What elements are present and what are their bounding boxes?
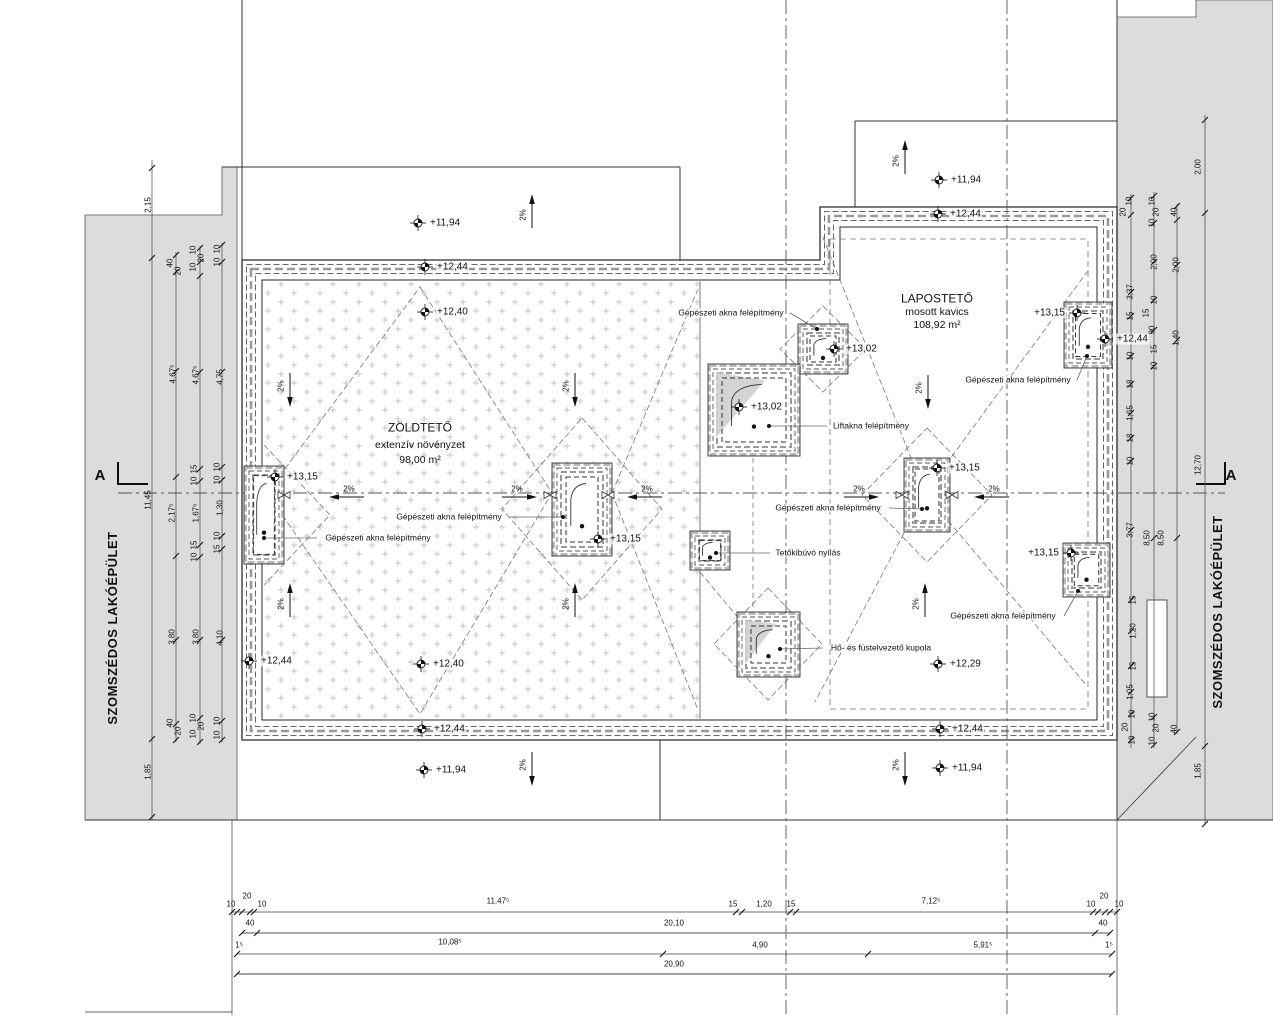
elevation-marker-icon <box>932 760 948 776</box>
dimension-label: 10 <box>190 263 199 272</box>
leader-dot <box>920 507 924 511</box>
leader-dot <box>1085 354 1089 358</box>
leader-dot <box>815 327 819 331</box>
elevation-label: +13,15 <box>1027 548 1060 559</box>
roof-shaft <box>906 460 949 531</box>
dimension-label: 8,50 <box>1144 530 1153 546</box>
dimension-label: 20 <box>198 254 207 263</box>
dimension-label: 15 <box>191 541 200 550</box>
green-roof-title: ZÖLDTETŐ <box>388 421 452 434</box>
dimension-label: 15 <box>1130 596 1139 605</box>
dimension-label: 1,05 <box>1127 684 1136 700</box>
dimension-label: 20,90 <box>664 961 684 970</box>
dimension-label: 18 <box>1127 434 1136 443</box>
dimension-label: 20 <box>1153 208 1162 217</box>
slope-label: 2% <box>913 598 922 610</box>
slope-label: 2% <box>563 380 572 392</box>
dimension-label: 15 <box>214 545 223 554</box>
dimension-label: 2,00 <box>1173 257 1182 273</box>
roof-shaft <box>925 506 929 510</box>
dimension-label: 10 <box>1115 901 1124 910</box>
dimension-label: 10 <box>214 532 223 541</box>
dimension-label: 20 <box>243 893 252 902</box>
roof-shaft <box>246 468 283 563</box>
dimension-label: 10 <box>191 477 200 486</box>
dimension-label: 10 <box>214 717 223 726</box>
roof-shaft <box>262 530 266 534</box>
dimension-label: 20 <box>1153 724 1162 733</box>
slope-arrow <box>529 194 535 204</box>
dimension-label: 1,85 <box>145 764 154 780</box>
dimension-label: 1⁵ <box>235 942 243 951</box>
elevation-marker-icon <box>932 721 948 737</box>
elevation-label: +11,94 <box>429 218 461 229</box>
slope-arrow <box>529 776 535 786</box>
dimension-label: 10 <box>214 463 223 472</box>
dimension-label: 40 <box>1171 208 1180 217</box>
dimension-label: 4,75 <box>217 369 226 385</box>
dimension-label: 1,40 <box>1173 330 1182 346</box>
dimension-label: 10 <box>1127 352 1136 361</box>
slope-arrow <box>902 140 908 150</box>
leader-dot <box>262 536 266 540</box>
dimension-label: 15 <box>787 901 796 910</box>
dimension-label: 1⁵ <box>1105 942 1113 951</box>
green-roof-area: 98,00 m² <box>399 455 440 467</box>
green-roof-subtitle: extenzív növényzet <box>375 440 465 452</box>
dimension-label: 4,90 <box>752 942 768 951</box>
slope-label: 2% <box>520 209 529 221</box>
elevation-marker-icon <box>417 259 433 275</box>
slope-label: 2% <box>278 380 287 392</box>
dimension-label: 7,12⁵ <box>922 898 941 907</box>
slope-label: 2% <box>916 382 925 394</box>
dimension-label: 10 <box>1151 296 1160 305</box>
dimension-label: 10 <box>191 553 200 562</box>
dimension-label: 15 <box>1130 662 1139 671</box>
dimension-label: 10 <box>258 901 267 910</box>
dimension-label: 20 <box>175 267 184 276</box>
slope-arrow <box>974 494 984 500</box>
dimension-label: 10 <box>1129 710 1138 719</box>
dimension-label: 15 <box>1151 345 1160 354</box>
slope-label: 2% <box>641 486 653 495</box>
elevation-marker-icon <box>416 762 432 778</box>
elevation-label: +12,29 <box>949 659 982 670</box>
dimension-label: 1,85 <box>1195 763 1204 779</box>
dimension-label: 20 <box>1122 723 1131 732</box>
dimension-label: 5,91⁵ <box>974 942 993 951</box>
dimension-label: 8,50 <box>1158 530 1167 546</box>
dimension-label: 10 <box>1129 736 1138 745</box>
dimension-label: 10 <box>1151 362 1160 371</box>
slope-arrow <box>925 399 931 409</box>
dimension-label: 4,10 <box>217 630 226 646</box>
dimension-label: 15 <box>191 465 200 474</box>
dimension-label: 11,45 <box>145 490 154 509</box>
dimension-label: 10 <box>1149 197 1158 206</box>
leader-dot <box>1076 589 1080 593</box>
slope-label: 2% <box>343 486 355 495</box>
neighbor-building-right <box>1117 0 1273 820</box>
elevation-marker-icon <box>930 656 946 672</box>
elevation-label: +12,44 <box>436 262 469 273</box>
leader-label: Gépészeti akna felépítmény <box>950 611 1055 620</box>
dimension-label: 10,08⁵ <box>438 939 461 948</box>
slope-label: 2% <box>511 486 523 495</box>
elevation-label: +12,44 <box>433 724 466 735</box>
dimension-label: 15 <box>729 901 738 910</box>
flat-roof-title: LAPOSTETŐ <box>901 292 973 305</box>
dimension-label: 10 <box>190 730 199 739</box>
elevation-label: +13,15 <box>609 534 642 545</box>
flat-roof-area: 108,92 m² <box>913 320 960 332</box>
slope-label: 2% <box>278 598 287 610</box>
roof-plan-drawing: SZOMSZÉDOS LAKÓÉPÜLET SZOMSZÉDOS LAKÓÉPÜ… <box>0 0 1273 1024</box>
roof-shaft <box>821 356 825 360</box>
roof-shaft <box>766 654 770 658</box>
dimension-label: 20,10 <box>664 920 684 929</box>
elevation-label: +12,44 <box>951 724 984 735</box>
dimension-label: 4,67⁵ <box>193 366 202 385</box>
roof-shaft <box>1084 578 1088 582</box>
roof-shaft <box>580 524 584 528</box>
section-marker-a-right: A <box>1226 468 1237 485</box>
dimension-label: 3,77 <box>1127 522 1136 538</box>
elevation-label: +12,40 <box>432 659 465 670</box>
dimension-label: 3,80 <box>193 629 202 645</box>
elevation-label: +13,15 <box>1033 308 1066 319</box>
left-building-title: SZOMSZÉDOS LAKÓÉPÜLET <box>106 531 120 724</box>
elevation-label: +12,40 <box>436 307 469 318</box>
dimension-label: 10 <box>1149 219 1158 228</box>
dimension-label: 10 <box>214 245 223 254</box>
slope-label: 2% <box>893 759 902 771</box>
elevation-marker-icon <box>414 721 430 737</box>
slope-arrow <box>902 776 908 786</box>
leader-dot <box>714 551 718 555</box>
dimension-label: 90 <box>1149 326 1158 335</box>
dimension-label: 4,67⁵ <box>170 365 179 384</box>
elevation-label: +12,44 <box>1116 334 1149 345</box>
dimension-label: 10 <box>1149 737 1158 746</box>
dimension-label: 10 <box>214 731 223 740</box>
dimension-label: 2,17⁵ <box>169 504 178 523</box>
dimension-label: 10 <box>214 476 223 485</box>
dimension-label: 3,80 <box>169 629 178 645</box>
dimension-label: 10 <box>227 901 236 910</box>
dimension-label: 10 <box>1127 457 1136 466</box>
dimension-label: 11,47⁵ <box>487 898 510 907</box>
dimension-label: 18 <box>1127 380 1136 389</box>
dimension-label: 10 <box>214 258 223 267</box>
dimension-label: 40 <box>1171 725 1180 734</box>
dimension-label: 20 <box>1120 208 1129 217</box>
dimension-label: 2,00 <box>1195 159 1204 175</box>
dimension-label: 2,00 <box>1151 254 1160 270</box>
slope-label: 2% <box>563 598 572 610</box>
elevation-label: +11,94 <box>435 765 467 776</box>
dimension-label: 1,20 <box>756 901 772 910</box>
dimension-label: 20 <box>175 727 184 736</box>
dimension-label: 10 <box>1087 901 1096 910</box>
elevation-label: +13,02 <box>845 344 878 355</box>
leader-dot <box>561 515 565 519</box>
elevation-label: +13,15 <box>948 463 981 474</box>
elevation-label: +13,15 <box>286 472 319 483</box>
dimension-label: 40 <box>1099 920 1108 929</box>
dimension-label: 2,15 <box>145 197 154 213</box>
dimension-label: 3,37 <box>1127 284 1136 300</box>
elevation-label: +11,94 <box>951 763 983 774</box>
dimension-label: 1,65 <box>1127 405 1136 421</box>
dimension-label: 40 <box>246 920 255 929</box>
slope-label: 2% <box>853 486 865 495</box>
elevation-label: +12,44 <box>949 209 982 220</box>
slope-label: 2% <box>893 155 902 167</box>
dimension-label: 12,70 <box>1195 455 1204 475</box>
slope-label: 2% <box>520 759 529 771</box>
leader-label: Gépészeti akna felépítmény <box>325 533 430 542</box>
leader-label: Hő- és füstelvezető kupola <box>831 643 931 652</box>
slope-arrow <box>869 494 879 500</box>
leader-label: Liftakna felépítmény <box>833 421 909 430</box>
dimension-label: 10 <box>1126 197 1135 206</box>
leader-label: Gépészeti akna felépítmény <box>678 308 783 317</box>
dimension-label: 10 <box>1149 713 1158 722</box>
elevation-marker-icon <box>930 206 946 222</box>
slope-label: 2% <box>988 486 1000 495</box>
leader-label: Tetőkibúvó nyílás <box>775 548 840 557</box>
right-building-title: SZOMSZÉDOS LAKÓÉPÜLET <box>1211 515 1225 708</box>
roof-shaft <box>708 555 712 559</box>
leader-dot <box>767 424 771 428</box>
dimension-label: 20 <box>1100 893 1109 902</box>
leader-label: Gépészeti akna felépítmény <box>775 503 880 512</box>
slope-arrow <box>922 583 928 593</box>
leader-label: Gépészeti akna felépítmény <box>396 512 501 521</box>
leader-label: Gépészeti akna felépítmény <box>965 375 1070 384</box>
elevation-marker-icon <box>931 172 947 188</box>
dimension-label: 15 <box>1143 309 1152 318</box>
roof-shaft <box>1086 345 1090 349</box>
elevation-label: +13,02 <box>750 402 783 413</box>
dimension-label: 15 <box>1127 312 1136 321</box>
elevation-marker-icon <box>241 653 257 669</box>
dimension-label: 1,67⁵ <box>193 504 202 523</box>
roof-shaft <box>752 424 756 428</box>
elevation-marker-icon <box>410 215 426 231</box>
dimension-label: 1,30 <box>217 500 226 516</box>
roof-shaft <box>692 533 729 569</box>
elevation-label: +12,44 <box>260 656 293 667</box>
dimension-label: 20 <box>198 722 207 731</box>
section-marker-a-left: A <box>95 468 106 485</box>
dimension-label: 1,20 <box>1130 623 1139 639</box>
elevation-label: +11,94 <box>950 175 982 186</box>
leader-dot <box>778 647 782 651</box>
flat-roof-subtitle: mosott kavics <box>905 307 969 319</box>
